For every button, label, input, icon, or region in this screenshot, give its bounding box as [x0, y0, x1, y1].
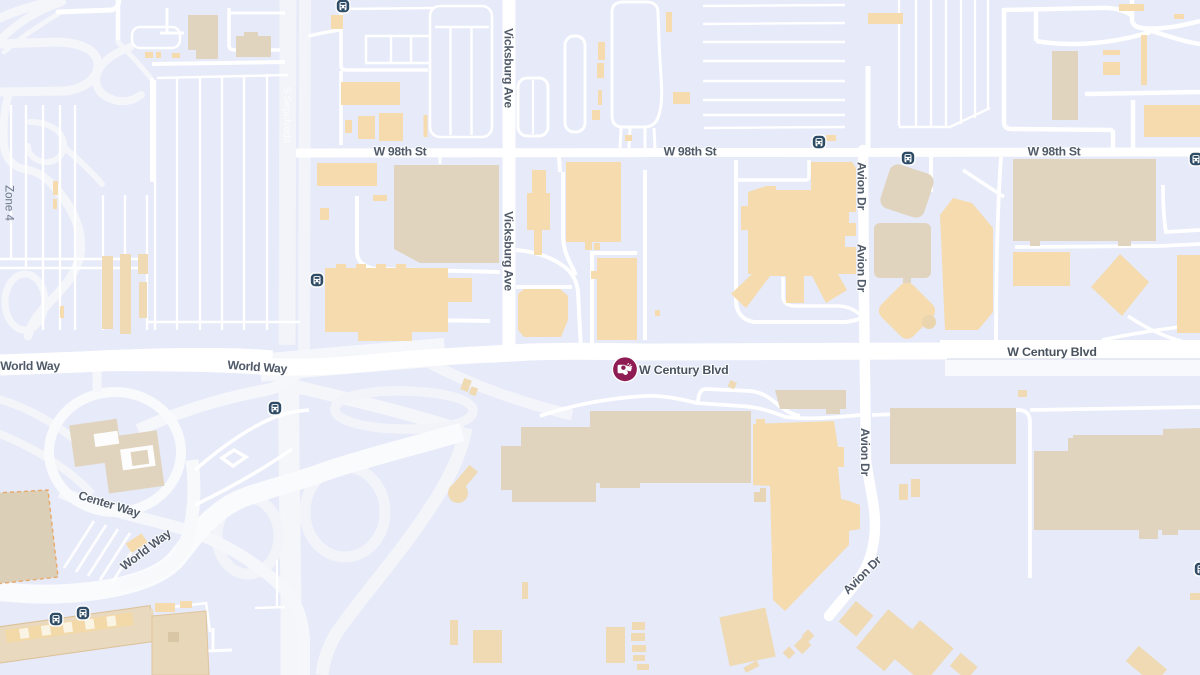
svg-text:W 98th St: W 98th St [1028, 145, 1081, 159]
svg-text:W Century Blvd: W Century Blvd [1007, 345, 1096, 359]
svg-text:Vicksburg Ave: Vicksburg Ave [502, 28, 516, 108]
svg-text:W Century Blvd: W Century Blvd [639, 363, 728, 377]
svg-text:W 98th St: W 98th St [374, 145, 427, 159]
svg-text:Vicksburg Ave: Vicksburg Ave [502, 211, 516, 291]
svg-text:Avion Dr: Avion Dr [855, 162, 869, 210]
svg-text:Avion Dr: Avion Dr [858, 428, 872, 476]
svg-text:W 98th St: W 98th St [664, 145, 717, 159]
svg-text:Zone 4: Zone 4 [3, 185, 15, 221]
svg-text:World Way: World Way [0, 359, 60, 373]
svg-text:S Sepulveda: S Sepulveda [281, 87, 292, 144]
svg-text:Avion Dr: Avion Dr [855, 244, 869, 292]
